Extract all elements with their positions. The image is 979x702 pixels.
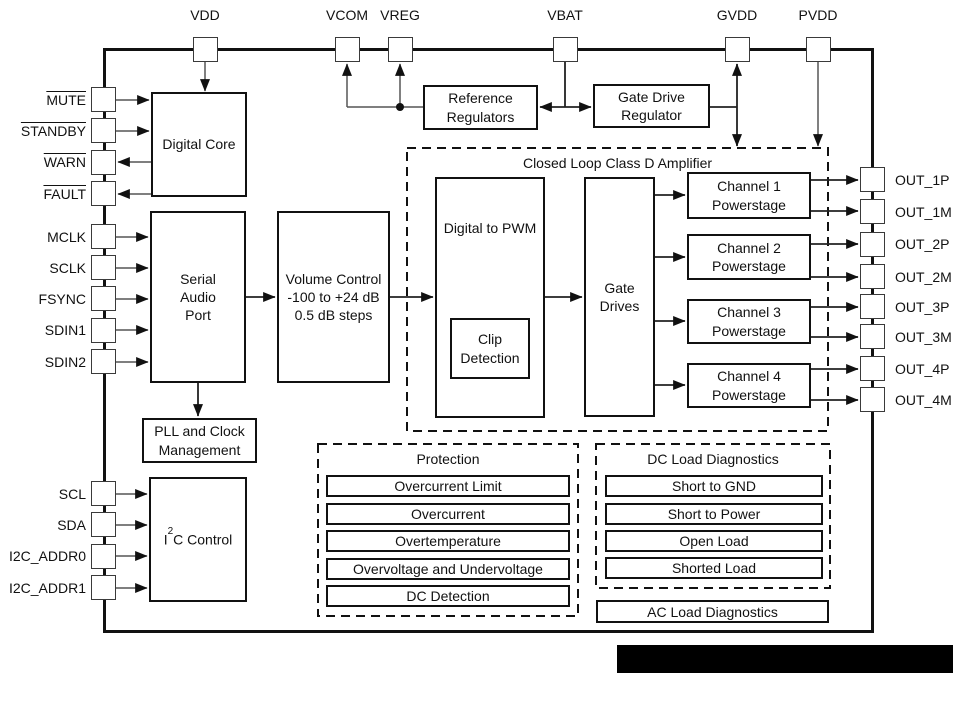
pin-out-1m — [860, 199, 885, 224]
pin-sda-label: SDA — [2, 517, 86, 533]
pin-out-3p — [860, 294, 885, 319]
pin-sdin2 — [91, 349, 116, 374]
pin-i2c-addr1-label: I2C_ADDR1 — [2, 580, 86, 596]
pin-out-3m-label: OUT_3M — [895, 329, 952, 345]
pin-sclk-label: SCLK — [2, 260, 86, 276]
dc-load-dashed-border — [596, 444, 830, 588]
pin-mclk — [91, 224, 116, 249]
pin-pvdd-label: PVDD — [778, 7, 858, 23]
pin-out-2p — [860, 232, 885, 257]
pin-fault-label: FAULT — [2, 186, 86, 202]
pin-warn — [91, 150, 116, 175]
pin-warn-label: WARN — [2, 154, 86, 170]
pin-vreg-label: VREG — [360, 7, 440, 23]
pin-fault — [91, 181, 116, 206]
pin-i2c-addr1 — [91, 575, 116, 600]
pin-out-4m — [860, 387, 885, 412]
pin-fsync-label: FSYNC — [2, 291, 86, 307]
pin-vreg — [388, 37, 413, 62]
protection-dashed-border — [318, 444, 578, 616]
pin-out-2m-label: OUT_2M — [895, 269, 952, 285]
pin-sdin1-label: SDIN1 — [2, 322, 86, 338]
pin-out-1p — [860, 167, 885, 192]
pin-out-4p-label: OUT_4P — [895, 361, 949, 377]
pin-out-3m — [860, 324, 885, 349]
pin-vbat — [553, 37, 578, 62]
pin-i2c-addr0-label: I2C_ADDR0 — [2, 548, 86, 564]
redaction-bar — [617, 645, 953, 673]
dashed-group-borders — [318, 148, 830, 616]
pin-out-1m-label: OUT_1M — [895, 204, 952, 220]
pin-out-2m — [860, 264, 885, 289]
pin-gvdd — [725, 37, 750, 62]
pin-sclk — [91, 255, 116, 280]
pin-fsync — [91, 286, 116, 311]
pin-mclk-label: MCLK — [2, 229, 86, 245]
pin-sdin1 — [91, 318, 116, 343]
closed-loop-dashed-border — [407, 148, 828, 431]
pin-vdd — [193, 37, 218, 62]
pin-vcom — [335, 37, 360, 62]
pin-sda — [91, 512, 116, 537]
pin-pvdd — [806, 37, 831, 62]
pin-out-2p-label: OUT_2P — [895, 236, 949, 252]
signal-connectors — [198, 62, 858, 416]
block-diagram: Digital Core Serial Audio Port Volume Co… — [0, 0, 979, 702]
pin-out-4p — [860, 356, 885, 381]
pin-scl — [91, 481, 116, 506]
pin-out-1p-label: OUT_1P — [895, 172, 949, 188]
pin-out-4m-label: OUT_4M — [895, 392, 952, 408]
pin-mute-label: MUTE — [2, 92, 86, 108]
pin-mute — [91, 87, 116, 112]
pin-standby — [91, 118, 116, 143]
connector-lines-layer — [0, 0, 979, 702]
pin-vdd-label: VDD — [165, 7, 245, 23]
pin-connectors — [116, 62, 818, 588]
pin-standby-label: STANDBY — [2, 123, 86, 139]
junction-dot — [396, 103, 404, 111]
pin-sdin2-label: SDIN2 — [2, 354, 86, 370]
pin-i2c-addr0 — [91, 544, 116, 569]
pin-vbat-label: VBAT — [525, 7, 605, 23]
pin-out-3p-label: OUT_3P — [895, 299, 949, 315]
pin-gvdd-label: GVDD — [697, 7, 777, 23]
pin-scl-label: SCL — [2, 486, 86, 502]
